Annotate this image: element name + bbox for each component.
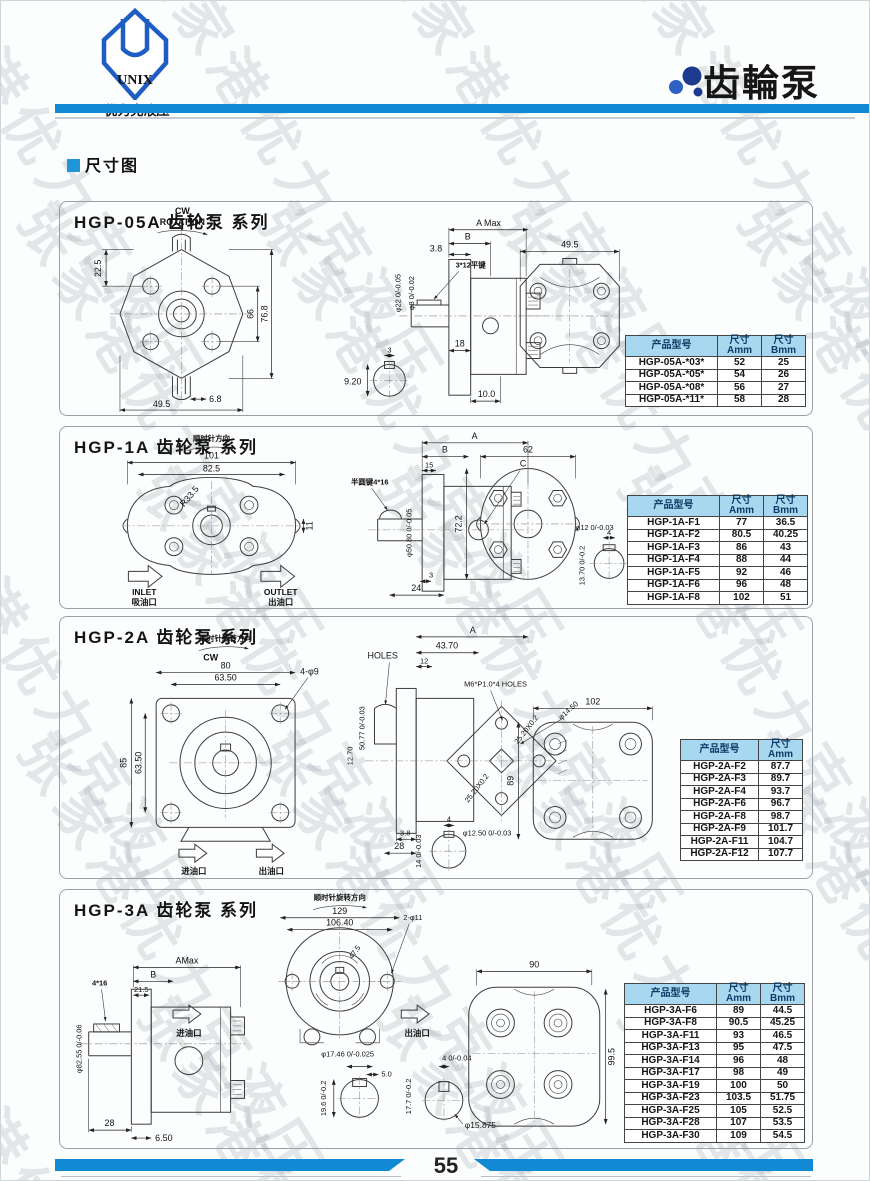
section-heading: 尺寸图: [67, 152, 139, 176]
dim-label: AMax: [176, 955, 199, 965]
table-cell: 46: [764, 567, 808, 580]
dim-label: 49.5: [153, 399, 170, 409]
dim-label: φ22 0/-0.05: [393, 274, 402, 312]
dim-label: 63.50: [214, 673, 236, 683]
table-row: HGP-05A-*05*5426: [626, 369, 806, 382]
hgp3a-shaft-details: φ17.46 0/-0.025 5.0 19.6 0/-0.2 4 0/-0.0…: [319, 1050, 496, 1130]
dim-label: 9.20: [344, 376, 361, 386]
dim-label: 4 0/-0.04: [442, 1054, 471, 1063]
table-row: HGP-2A-F389.7: [681, 773, 803, 786]
table-cell: HGP-3A-F25: [625, 1105, 717, 1118]
table-cell: 95: [717, 1042, 761, 1055]
logo-text: UNIX: [117, 73, 153, 88]
page-number: 55: [416, 1153, 476, 1179]
dim-label: R33.5: [178, 484, 201, 509]
dim-label: 5.0: [381, 1070, 391, 1079]
table-cell: 98: [717, 1067, 761, 1080]
table-cell: 27: [762, 382, 806, 395]
footer-line-right: [481, 1176, 811, 1177]
table-row: HGP-3A-F119346.5: [625, 1030, 805, 1043]
table-cell: HGP-05A-*08*: [626, 382, 718, 395]
table-header-row: 产品型号 尺寸Amm 尺寸Bmm: [628, 496, 808, 517]
table-cell: 90.5: [717, 1017, 761, 1030]
table-cell: 92: [720, 567, 764, 580]
table-row: HGP-3A-F2510552.5: [625, 1105, 805, 1118]
dim-label: 6.8: [209, 394, 221, 404]
panel-title: HGP-1A 齿轮泵 系列: [74, 433, 258, 458]
footer-bar-left: [55, 1159, 405, 1171]
table-row: HGP-1A-F59246: [628, 567, 808, 580]
unix-logo: UNIX: [93, 6, 177, 100]
table-cell: HGP-1A-F4: [628, 554, 720, 567]
table-cell: 89: [717, 1005, 761, 1018]
table-cell: 48: [764, 579, 808, 592]
table-cell: HGP-3A-F13: [625, 1042, 717, 1055]
dim-label: A: [472, 431, 478, 441]
dim-label: 出油口: [405, 1028, 430, 1038]
dim-label: 19.6 0/-0.2: [319, 1081, 328, 1117]
table-cell: 88: [720, 554, 764, 567]
hgp-2a-spec-table: 产品型号 尺寸Amm HGP-2A-F287.7HGP-2A-F389.7HGP…: [680, 739, 803, 861]
table-cell: 36.5: [764, 517, 808, 530]
hgp05a-rear-view: 49.5: [520, 240, 619, 374]
col-header: 尺寸Bmm: [761, 984, 805, 1005]
table-cell: HGP-3A-F30: [625, 1130, 717, 1143]
table-row: HGP-2A-F9101.7: [681, 823, 803, 836]
table-cell: HGP-2A-F12: [681, 848, 759, 861]
page-content: UNIX 优力克液压 齿輪泵 尺寸图 HGP-05A 齿轮泵 系列: [1, 1, 869, 1180]
dim-label: CW: [203, 653, 218, 663]
table-cell: 26: [762, 369, 806, 382]
dim-label: 进油口: [181, 866, 206, 876]
table-cell: HGP-3A-F8: [625, 1017, 717, 1030]
table-cell: 105: [717, 1105, 761, 1118]
dim-label: 3.8: [400, 828, 410, 837]
header-gray-line: [55, 117, 855, 119]
dim-label: 11: [304, 521, 314, 530]
table-cell: 52.5: [761, 1105, 805, 1118]
dim-label: B: [150, 969, 156, 979]
table-cell: HGP-2A-F6: [681, 798, 759, 811]
table-cell: 96: [720, 579, 764, 592]
table-row: HGP-3A-F23103.551.75: [625, 1092, 805, 1105]
table-cell: 58: [718, 394, 762, 407]
dim-label: 进油口: [176, 1028, 201, 1038]
table-cell: 103.5: [717, 1092, 761, 1105]
catalog-page: 张家港优力克液压张家港优力克液压张家港优力克液压张家港优力克液压张家港优力克液压…: [0, 0, 870, 1181]
dim-label: A Max: [476, 218, 501, 228]
table-row: HGP-1A-F69648: [628, 579, 808, 592]
table-cell: HGP-05A-*03*: [626, 357, 718, 370]
col-header: 尺寸Amm: [759, 740, 803, 761]
dim-label: 80: [221, 661, 231, 671]
table-cell: HGP-1A-F3: [628, 542, 720, 555]
blue-square-icon: [67, 159, 80, 172]
dim-label: 18: [455, 339, 465, 349]
panel-hgp-2a: HGP-2A 齿轮泵 系列 顺时针旋转方向 CW: [59, 616, 813, 879]
table-cell: HGP-05A-*11*: [626, 394, 718, 407]
table-cell: HGP-3A-F17: [625, 1067, 717, 1080]
hgp05a-side-view: A Max B 3.8 φ22 0/-0.05 φ8 0/-0.02 3*12平…: [344, 218, 550, 403]
panel-title: HGP-2A 齿轮泵 系列: [74, 623, 258, 648]
dim-label: 66: [246, 309, 256, 319]
table-row: HGP-2A-F287.7: [681, 761, 803, 774]
table-cell: HGP-2A-F9: [681, 823, 759, 836]
dim-label: 85: [118, 758, 128, 768]
col-header: 尺寸Amm: [718, 336, 762, 357]
table-cell: HGP-2A-F3: [681, 773, 759, 786]
dim-label: 半圆键4*16: [351, 476, 388, 486]
dim-label: 90: [529, 959, 539, 969]
table-row: HGP-3A-F1910050: [625, 1080, 805, 1093]
dim-label: 出油口: [259, 866, 284, 876]
panel-hgp-05a: HGP-05A 齿轮泵 系列 CW ROTATION: [59, 201, 813, 416]
dim-label: φ82.55 0/-0.06: [75, 1024, 84, 1073]
table-cell: 51.75: [761, 1092, 805, 1105]
dim-label: 6.50: [155, 1133, 172, 1143]
table-cell: 96: [717, 1055, 761, 1068]
table-row: HGP-05A-*11*5828: [626, 394, 806, 407]
table-row: HGP-05A-*03*5225: [626, 357, 806, 370]
table-cell: 54: [718, 369, 762, 382]
table-cell: HGP-1A-F2: [628, 529, 720, 542]
hgp-1a-spec-table: 产品型号 尺寸Amm 尺寸Bmm HGP-1A-F17736.5HGP-1A-F…: [627, 495, 808, 605]
table-cell: HGP-1A-F5: [628, 567, 720, 580]
table-row: HGP-3A-F139547.5: [625, 1042, 805, 1055]
table-cell: HGP-3A-F19: [625, 1080, 717, 1093]
table-row: HGP-1A-F810251: [628, 592, 808, 605]
table-cell: 80.5: [720, 529, 764, 542]
table-cell: 109: [717, 1130, 761, 1143]
table-cell: 93.7: [759, 786, 803, 799]
dim-label: 10.0: [478, 389, 495, 399]
dim-label: 49.5: [561, 240, 578, 250]
hgp-05a-spec-table: 产品型号 尺寸Amm 尺寸Bmm HGP-05A-*03*5225HGP-05A…: [625, 335, 806, 407]
table-row: HGP-3A-F890.545.25: [625, 1017, 805, 1030]
table-cell: 107.7: [759, 848, 803, 861]
dim-label: 47.5: [347, 944, 363, 961]
col-header: 产品型号: [625, 984, 717, 1005]
table-cell: 93: [717, 1030, 761, 1043]
table-row: HGP-3A-F68944.5: [625, 1005, 805, 1018]
table-header-row: 产品型号 尺寸Amm 尺寸Bmm: [625, 984, 805, 1005]
table-cell: 102: [720, 592, 764, 605]
dim-label: 3: [429, 570, 433, 579]
table-cell: 52: [718, 357, 762, 370]
hgp1a-side-view: A B 15 半圆键4*16 C: [351, 431, 533, 595]
table-cell: 87.7: [759, 761, 803, 774]
table-cell: HGP-3A-F23: [625, 1092, 717, 1105]
table-cell: 56: [718, 382, 762, 395]
dim-label: 62: [523, 445, 533, 455]
dim-label: 13.70 0/-0.2: [577, 546, 586, 586]
dim-label: 63.50: [133, 752, 143, 774]
hgp1a-front-view: 顺时针方向 101 82.5 R33.5 11 INLET 吸油口 OUTLET…: [122, 433, 314, 607]
dim-label: φ50.80 0/-0.05: [404, 509, 413, 557]
table-row: HGP-2A-F11104.7: [681, 836, 803, 849]
table-cell: 44: [764, 554, 808, 567]
dim-label: HOLES: [368, 651, 398, 661]
table-row: HGP-2A-F493.7: [681, 786, 803, 799]
dim-label: 102: [585, 696, 600, 706]
table-cell: 104.7: [759, 836, 803, 849]
dim-label: 4*16: [92, 978, 107, 987]
table-row: HGP-1A-F280.540.25: [628, 529, 808, 542]
table-cell: 54.5: [761, 1130, 805, 1143]
dim-label: A: [470, 625, 476, 635]
table-cell: 46.5: [761, 1030, 805, 1043]
table-row: HGP-1A-F48844: [628, 554, 808, 567]
table-cell: 25: [762, 357, 806, 370]
dim-label: 89: [505, 776, 515, 786]
footer-bar-right: [474, 1159, 813, 1171]
table-cell: 101.7: [759, 823, 803, 836]
dim-label: 99.5: [607, 1048, 617, 1065]
hgp3a-rear-view: 90 99.5: [469, 959, 617, 1126]
dim-label: φ14.50: [557, 699, 580, 721]
dim-label: φ8 0/-0.02: [407, 276, 416, 310]
table-row: HGP-2A-F898.7: [681, 811, 803, 824]
hgp1a-rear-view: 62 72.2 φ12 0/-0.03 4: [454, 445, 629, 586]
table-cell: HGP-3A-F14: [625, 1055, 717, 1068]
dim-label: 12.70: [346, 747, 355, 766]
hgp05a-front-view: CW ROTATION 22.5 66 76.8 6.8 49.5: [93, 206, 273, 412]
dim-label: 72.2: [454, 515, 464, 532]
panel-hgp-1a: HGP-1A 齿轮泵 系列 顺时针方向 101: [59, 426, 813, 609]
col-header: 产品型号: [681, 740, 759, 761]
table-cell: 49: [761, 1067, 805, 1080]
dim-label: INLET: [132, 587, 157, 597]
dim-label: 28: [105, 1118, 115, 1128]
dim-label: 3: [387, 346, 391, 355]
dim-label: 12: [420, 657, 428, 666]
table-row: HGP-1A-F17736.5: [628, 517, 808, 530]
dim-label: 吸油口: [132, 597, 157, 607]
dim-label: 15: [425, 461, 433, 470]
dim-label: 17.7 0/-0.2: [404, 1079, 413, 1115]
dim-label: 25.20X0.2: [463, 772, 491, 804]
table-cell: HGP-2A-F8: [681, 811, 759, 824]
table-cell: 48: [761, 1055, 805, 1068]
dim-label: M6*P1.0*4 HOLES: [464, 679, 527, 688]
panel-title: HGP-05A 齿轮泵 系列: [74, 208, 270, 233]
table-row: HGP-1A-F38643: [628, 542, 808, 555]
table-row: HGP-05A-*08*5627: [626, 382, 806, 395]
table-row: HGP-3A-F3010954.5: [625, 1130, 805, 1143]
dim-label: 顺时针旋转方向: [314, 892, 366, 902]
dim-label: 129: [332, 906, 347, 916]
col-header: 尺寸Amm: [720, 496, 764, 517]
table-cell: 96.7: [759, 798, 803, 811]
table-row: HGP-2A-F696.7: [681, 798, 803, 811]
col-header: 产品型号: [626, 336, 718, 357]
table-cell: 50: [761, 1080, 805, 1093]
col-header: 尺寸Amm: [717, 984, 761, 1005]
dim-label: 22.5: [93, 260, 103, 277]
hgp-3a-spec-table: 产品型号 尺寸Amm 尺寸Bmm HGP-3A-F68944.5HGP-3A-F…: [624, 983, 805, 1143]
table-cell: 89.7: [759, 773, 803, 786]
table-cell: HGP-05A-*05*: [626, 369, 718, 382]
dim-label: OUTLET: [264, 587, 298, 597]
dim-label: 4: [607, 528, 611, 537]
table-cell: 98.7: [759, 811, 803, 824]
col-header: 尺寸Bmm: [762, 336, 806, 357]
dim-label: 出油口: [268, 597, 293, 607]
table-row: HGP-3A-F179849: [625, 1067, 805, 1080]
table-cell: 44.5: [761, 1005, 805, 1018]
col-header: 尺寸Bmm: [764, 496, 808, 517]
table-cell: 45.25: [761, 1017, 805, 1030]
dim-label: 4: [447, 814, 451, 823]
page-title: 齿輪泵: [703, 53, 820, 107]
footer-line-left: [61, 1176, 401, 1177]
dim-label: 14 0/-0.03: [414, 834, 423, 868]
table-cell: 43: [764, 542, 808, 555]
table-header-row: 产品型号 尺寸Amm: [681, 740, 803, 761]
panel-hgp-3a: HGP-3A 齿轮泵 系列 AMax B 21.5: [59, 889, 813, 1149]
table-cell: HGP-2A-F11: [681, 836, 759, 849]
dim-label: 3.8: [430, 244, 442, 254]
table-cell: 100: [717, 1080, 761, 1093]
table-row: HGP-3A-F2810753.5: [625, 1117, 805, 1130]
dim-label: φ17.46 0/-0.025: [321, 1050, 374, 1059]
table-cell: HGP-3A-F28: [625, 1117, 717, 1130]
section-heading-label: 尺寸图: [85, 158, 139, 175]
table-cell: HGP-2A-F4: [681, 786, 759, 799]
dim-label: 28: [394, 841, 404, 851]
header-accent-bar: [55, 104, 870, 113]
dim-label: B: [442, 445, 448, 455]
table-header-row: 产品型号 尺寸Amm 尺寸Bmm: [626, 336, 806, 357]
table-cell: 53.5: [761, 1117, 805, 1130]
table-cell: 40.25: [764, 529, 808, 542]
panel-title: HGP-3A 齿轮泵 系列: [74, 896, 258, 921]
table-cell: 51: [764, 592, 808, 605]
col-header: 产品型号: [628, 496, 720, 517]
dim-label: 76.8: [260, 305, 270, 322]
table-cell: HGP-3A-F6: [625, 1005, 717, 1018]
table-row: HGP-2A-F12107.7: [681, 848, 803, 861]
dim-label: 50.77 0/-0.03: [358, 706, 367, 750]
dim-label: 24: [411, 583, 421, 593]
table-cell: 86: [720, 542, 764, 555]
dim-label: C: [520, 459, 527, 469]
hgp3a-side-view: AMax B 21.5 4*16: [75, 955, 246, 1143]
table-cell: 77: [720, 517, 764, 530]
dim-label: φ12.50 0/-0.03: [463, 828, 512, 837]
table-cell: 47.5: [761, 1042, 805, 1055]
table-cell: HGP-1A-F1: [628, 517, 720, 530]
dim-label: B: [465, 232, 471, 242]
dim-label: 2-φ11: [403, 913, 422, 922]
table-cell: 107: [717, 1117, 761, 1130]
table-cell: HGP-1A-F8: [628, 592, 720, 605]
table-cell: 28: [762, 394, 806, 407]
dim-label: 3*12平键: [456, 259, 487, 269]
hgp2a-front-view: 顺时针旋转方向 CW 80 63.50 4-φ9 85 63.50 进油口: [118, 633, 318, 876]
dim-label: 4-φ9: [300, 667, 319, 677]
dim-label: 43.70: [436, 641, 458, 651]
hgp2a-rear-view: 102 89: [505, 696, 652, 839]
table-cell: HGP-3A-F11: [625, 1030, 717, 1043]
dim-label: 82.5: [203, 464, 220, 474]
table-cell: HGP-2A-F2: [681, 761, 759, 774]
table-cell: HGP-1A-F6: [628, 579, 720, 592]
table-row: HGP-3A-F149648: [625, 1055, 805, 1068]
